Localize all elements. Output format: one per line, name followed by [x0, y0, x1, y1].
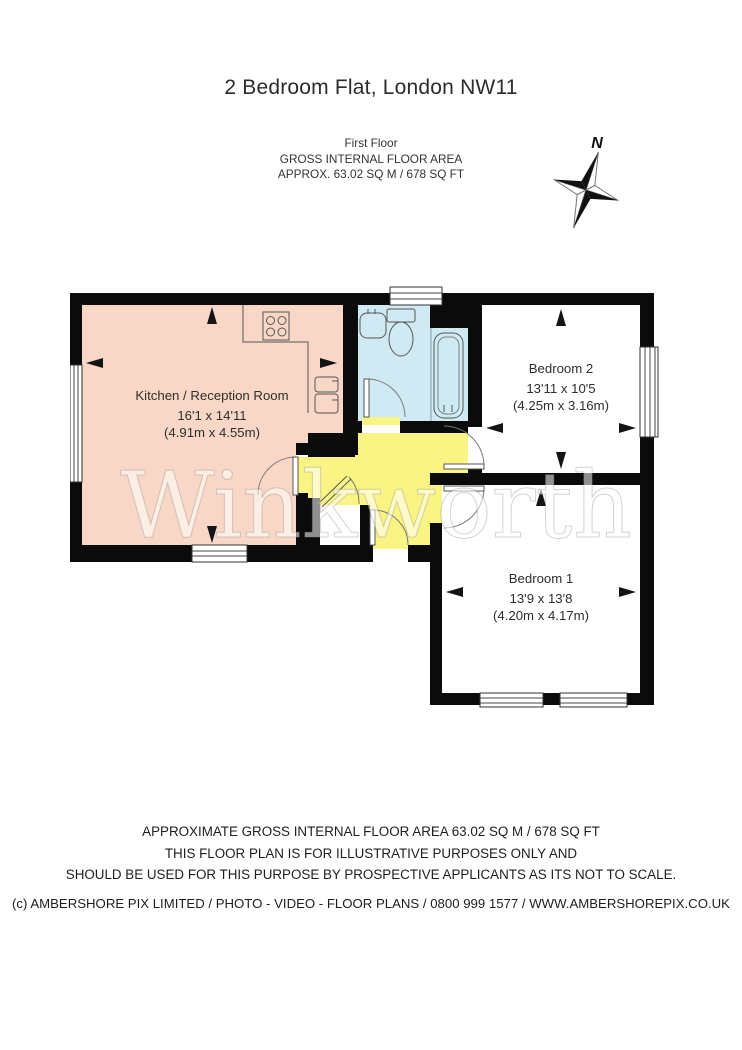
bedroom2-door-opening [468, 427, 482, 467]
bathroom-door-opening [362, 417, 400, 425]
disclaimer: APPROXIMATE GROSS INTERNAL FLOOR AREA 63… [0, 821, 742, 886]
bedroom1-door-opening [430, 485, 442, 525]
bedroom1-label: Bedroom 1 [509, 571, 574, 586]
compass-north-label: N [591, 135, 603, 152]
bedroom2-window [640, 347, 658, 437]
compass-rose-icon: N [538, 132, 634, 236]
bathroom-window [390, 287, 442, 305]
page-title: 2 Bedroom Flat, London NW11 [0, 76, 742, 100]
floorplan-page: 2 Bedroom Flat, London NW11 First Floor … [0, 0, 742, 1050]
bedroom2-label: Bedroom 2 [529, 361, 594, 376]
disclaimer-line-2: THIS FLOOR PLAN IS FOR ILLUSTRATIVE PURP… [0, 843, 742, 865]
bedroom1-dims-imperial: 13'9 x 13'8 [510, 591, 573, 606]
kitchen-dims-imperial: 16'1 x 14'11 [177, 408, 246, 423]
copyright-line: (c) AMBERSHORE PIX LIMITED / PHOTO - VID… [0, 896, 742, 911]
bedroom1-dims-metric: (4.20m x 4.17m) [493, 608, 589, 623]
kitchen-bottom-window [192, 545, 247, 562]
kitchen-left-window [70, 365, 82, 482]
bedroom1-window-right [560, 693, 627, 707]
bedroom2-dims-imperial: 13'11 x 10'5 [526, 381, 595, 396]
floorplan-drawing: Kitchen / Reception Room 16'1 x 14'11 (4… [70, 285, 682, 717]
disclaimer-line-3: SHOULD BE USED FOR THIS PURPOSE BY PROSP… [0, 864, 742, 886]
bedroom2-dims-metric: (4.25m x 3.16m) [513, 398, 609, 413]
kitchen-label: Kitchen / Reception Room [135, 388, 288, 403]
kitchen-dims-metric: (4.91m x 4.55m) [164, 425, 260, 440]
bedroom1-window-left [480, 693, 543, 707]
hall-cupboard [320, 505, 360, 545]
disclaimer-line-1: APPROXIMATE GROSS INTERNAL FLOOR AREA 63… [0, 821, 742, 843]
